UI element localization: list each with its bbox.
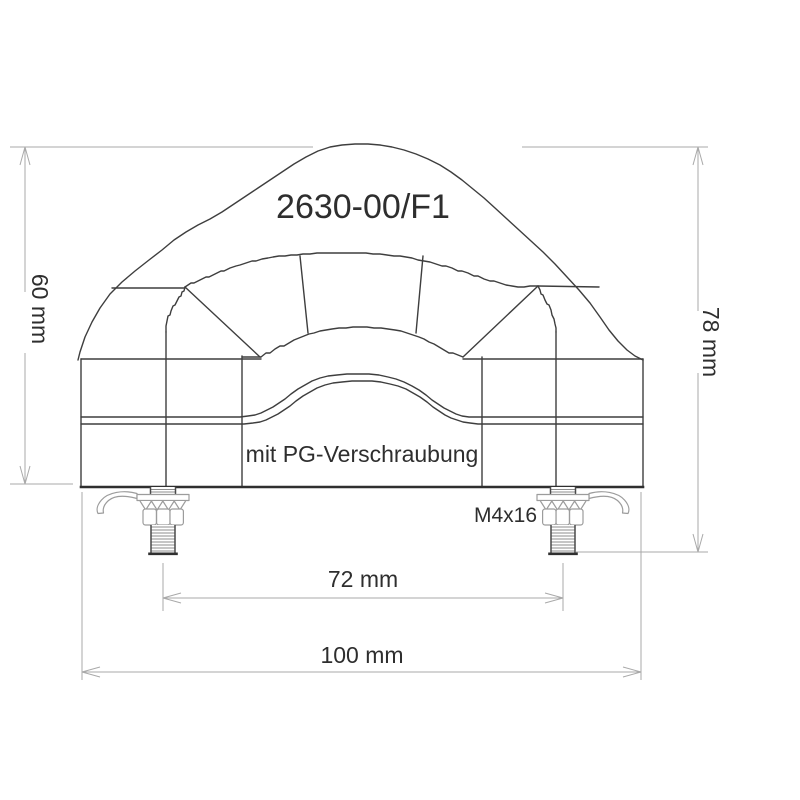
dim-label-bolt-spacing: 72 mm <box>328 566 398 592</box>
arch-insert <box>112 253 599 357</box>
washer-plate <box>137 495 189 501</box>
retaining-clip-icon <box>97 492 137 514</box>
screw-size-label: M4x16 <box>474 504 537 527</box>
dimension-60mm: 60 mm <box>10 147 313 484</box>
threaded-shaft <box>150 525 177 554</box>
part-number-label: 2630-00/F1 <box>276 188 450 226</box>
flange-nut <box>143 509 183 525</box>
clamp-drawing-svg: 60 mm 78 mm 72 mm 100 mm <box>0 0 800 800</box>
dim-label-total-width: 100 mm <box>320 642 403 668</box>
pg-variant-label: mit PG-Verschraubung <box>246 441 479 467</box>
technical-drawing-page: 60 mm 78 mm 72 mm 100 mm <box>0 0 800 800</box>
bolt-assembly-right <box>537 487 629 554</box>
dim-label-body-height: 60 mm <box>27 274 53 344</box>
bolt-assembly-left <box>97 487 189 554</box>
dim-label-total-height: 78 mm <box>698 307 724 377</box>
dimension-72mm: 72 mm <box>163 563 563 611</box>
